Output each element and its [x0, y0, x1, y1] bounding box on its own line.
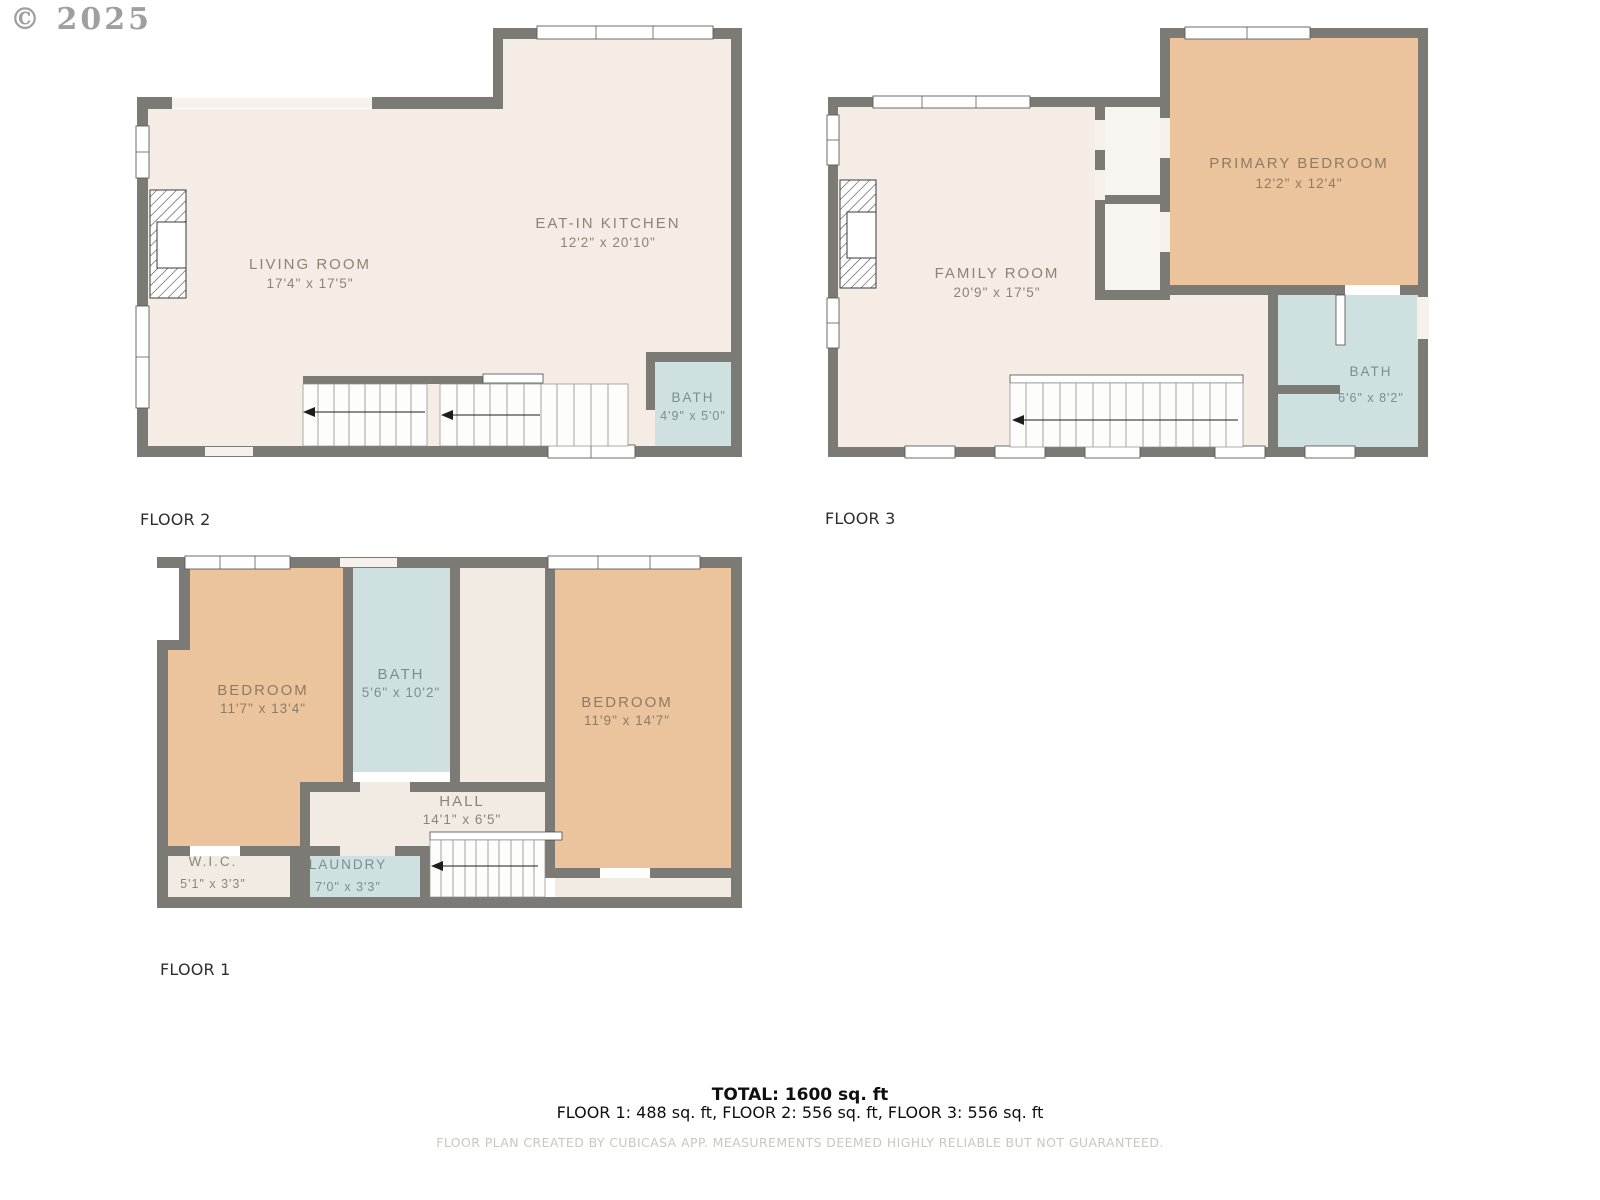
room-label-laundry: LAUNDRY — [309, 857, 387, 872]
window — [185, 556, 290, 569]
room-label-living-room: LIVING ROOM — [249, 256, 371, 273]
floor1-openings — [340, 558, 397, 567]
floor-3-caption: FLOOR 3 — [825, 509, 896, 528]
floor-2-caption: FLOOR 2 — [140, 510, 211, 529]
total-area-text: TOTAL: 1600 sq. ft — [0, 1085, 1600, 1105]
window — [537, 26, 713, 39]
bath-wall-stub — [1268, 385, 1340, 394]
door-opening — [1095, 170, 1105, 200]
room-dims-hall: 14'1" x 6'5" — [423, 812, 502, 827]
room-label-primary-bedroom: PRIMARY BEDROOM — [1209, 155, 1388, 172]
room-label-bedroom-1: BEDROOM — [217, 682, 309, 699]
room-dims-primary-bedroom: 12'2" x 12'4" — [1255, 176, 1342, 191]
window — [905, 446, 955, 458]
wall-opening — [340, 558, 397, 567]
door-opening — [1417, 297, 1429, 339]
room-dims-bedroom-2: 11'9" x 14'7" — [584, 713, 670, 728]
door-opening — [1160, 118, 1170, 158]
fireplace-icon — [840, 180, 876, 288]
room-label-bath: BATH — [671, 390, 714, 405]
disclaimer-text: FLOOR PLAN CREATED BY CUBICASA APP. MEAS… — [0, 1135, 1600, 1150]
room-label-eat-in-kitchen: EAT-IN KITCHEN — [535, 215, 680, 232]
window — [548, 556, 700, 569]
window — [548, 445, 635, 458]
window — [1185, 27, 1310, 39]
room-dims-bedroom-1: 11'7" x 13'4" — [220, 701, 306, 716]
window — [1305, 446, 1355, 458]
floor-area-breakdown-text: FLOOR 1: 488 sq. ft, FLOOR 2: 556 sq. ft… — [0, 1103, 1600, 1122]
room-label-bath: BATH — [378, 666, 425, 683]
door-opening — [1160, 212, 1170, 252]
room-dims-laundry: 7'0" x 3'3" — [315, 880, 381, 894]
floor-plan-floor-1: BEDROOM 11'7" x 13'4" BATH 5'6" x 10'2" … — [150, 550, 750, 915]
room-dims-living-room: 17'4" x 17'5" — [266, 276, 353, 291]
room-dims-wic: 5'1" x 3'3" — [180, 877, 246, 891]
window — [873, 96, 1030, 108]
floor3-stairs — [1010, 375, 1243, 447]
bath-door-leaf — [1336, 295, 1345, 345]
hall-floor — [460, 568, 545, 782]
room-dims-bath: 4'9" x 5'0" — [660, 409, 726, 423]
room-label-bath: BATH — [1349, 364, 1392, 379]
floor-plan-floor-3: FAMILY ROOM 20'9" x 17'5" PRIMARY BEDROO… — [820, 15, 1436, 465]
window — [1215, 446, 1265, 458]
floor1-stairs — [430, 832, 562, 897]
wall-opening — [172, 98, 372, 108]
fireplace-icon — [150, 190, 186, 298]
door-opening — [1095, 120, 1105, 150]
bath-floor — [1278, 295, 1418, 447]
room-label-wic: W.I.C. — [189, 854, 238, 869]
room-dims-eat-in-kitchen: 12'2" x 20'10" — [560, 235, 656, 250]
room-label-family-room: FAMILY ROOM — [935, 265, 1060, 282]
floor2-stairs — [303, 374, 628, 446]
room-label-hall: HALL — [439, 793, 485, 810]
window — [1085, 446, 1140, 458]
room-dims-bath: 6'6" x 8'2" — [1338, 391, 1404, 405]
room-dims-family-room: 20'9" x 17'5" — [953, 285, 1040, 300]
hall-floor — [555, 878, 731, 897]
room-label-bedroom-2: BEDROOM — [581, 694, 673, 711]
wall-opening — [205, 447, 253, 456]
floor-plan-page: © 2025 — [0, 0, 1600, 1200]
floor-1-caption: FLOOR 1 — [160, 960, 231, 979]
window — [995, 446, 1045, 458]
floor-plan-floor-2: LIVING ROOM 17'4" x 17'5" EAT-IN KITCHEN… — [130, 20, 750, 465]
room-dims-bath: 5'6" x 10'2" — [362, 685, 441, 700]
